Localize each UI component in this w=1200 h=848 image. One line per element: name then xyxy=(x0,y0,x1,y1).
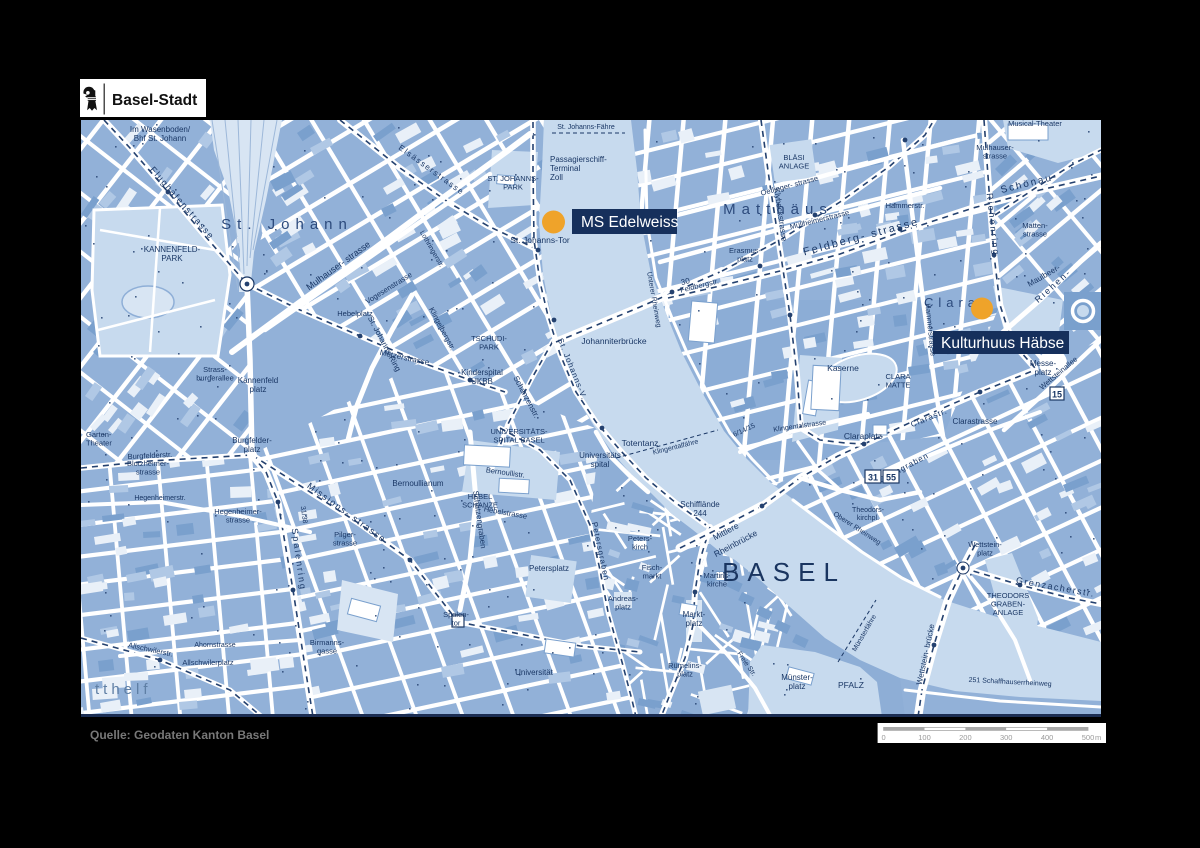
svg-text:Musical-Theater: Musical-Theater xyxy=(1008,119,1062,128)
svg-text:Totentanz: Totentanz xyxy=(622,438,659,448)
svg-text:UNIVERSITÄTS-SPITAL BASEL: UNIVERSITÄTS-SPITAL BASEL xyxy=(490,427,548,445)
svg-text:100: 100 xyxy=(918,733,931,742)
svg-text:CLARAMATTE: CLARAMATTE xyxy=(885,372,910,390)
svg-text:Hegenheimerstr.: Hegenheimerstr. xyxy=(134,495,185,502)
svg-text:Kulturhuus Häbse: Kulturhuus Häbse xyxy=(941,335,1064,352)
svg-text:Garten-Theater: Garten-Theater xyxy=(86,430,112,448)
svg-text:BASEL: BASEL xyxy=(722,557,846,587)
svg-text:Hebelplatz: Hebelplatz xyxy=(337,309,373,318)
svg-text:Hammerstr.: Hammerstr. xyxy=(886,201,925,210)
svg-text:Ahornstrasse: Ahornstrasse xyxy=(194,642,235,649)
svg-text:Johanniterbrücke: Johanniterbrücke xyxy=(581,336,646,346)
svg-text:St. Johanns-Tor: St. Johanns-Tor xyxy=(510,235,570,245)
svg-text:Im Wasenboden/Bhf St. Johann: Im Wasenboden/Bhf St. Johann xyxy=(130,125,191,143)
svg-text:15: 15 xyxy=(1052,390,1062,400)
svg-text:St. Johanns-Fähre: St. Johanns-Fähre xyxy=(557,124,615,131)
svg-text:55: 55 xyxy=(886,473,896,483)
svg-text:m: m xyxy=(1095,733,1101,742)
svg-text:PFALZ: PFALZ xyxy=(838,680,864,690)
svg-text:Fisch-markt: Fisch-markt xyxy=(642,563,663,581)
svg-text:Universität: Universität xyxy=(515,668,554,677)
svg-text:Pilger-strasse: Pilger-strasse xyxy=(333,530,357,548)
svg-text:Quelle: Geodaten Kanton Basel: Quelle: Geodaten Kanton Basel xyxy=(90,728,269,742)
svg-text:Martins-kirche: Martins-kirche xyxy=(703,571,731,589)
svg-text:Markt-platz: Markt-platz xyxy=(683,610,706,628)
svg-text:tthelf: tthelf xyxy=(95,681,152,698)
svg-text:Matten-strasse: Matten-strasse xyxy=(1022,221,1048,239)
svg-text:MS Edelweiss: MS Edelweiss xyxy=(581,214,679,231)
svg-text:St. Johann: St. Johann xyxy=(221,216,353,233)
svg-text:200: 200 xyxy=(959,733,972,742)
svg-text:Claraplatz: Claraplatz xyxy=(844,431,882,441)
svg-text:Petersplatz: Petersplatz xyxy=(529,564,569,573)
svg-text:Bernoullianum: Bernoullianum xyxy=(392,479,443,488)
svg-text:0: 0 xyxy=(882,733,886,742)
svg-text:400: 400 xyxy=(1041,733,1054,742)
svg-text:Kaserne: Kaserne xyxy=(827,363,859,373)
svg-text:300: 300 xyxy=(1000,733,1013,742)
svg-text:500: 500 xyxy=(1082,733,1095,742)
svg-text:THEODORSGRABEN-ANLAGE: THEODORSGRABEN-ANLAGE xyxy=(987,591,1030,617)
svg-text:Clarastrasse: Clarastrasse xyxy=(953,417,998,426)
svg-text:31: 31 xyxy=(868,473,878,483)
svg-text:Basel-Stadt: Basel-Stadt xyxy=(112,92,197,109)
svg-text:Allschwilerplatz: Allschwilerplatz xyxy=(182,658,234,667)
